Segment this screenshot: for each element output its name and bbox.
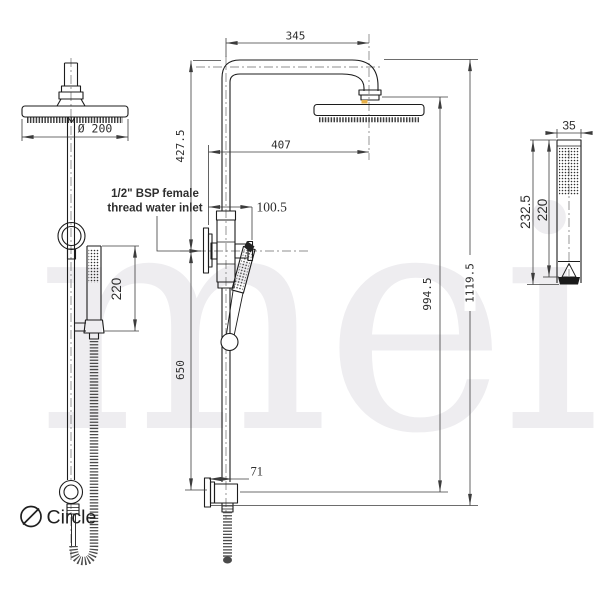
arm-inner: [230, 74, 364, 91]
technical-drawing-page: meir: [0, 0, 600, 600]
dim-100-text: 100.5: [257, 200, 288, 215]
dim-220l-text: 220: [109, 278, 124, 301]
hose-tip: [223, 557, 232, 564]
circle-style-symbol: [21, 507, 41, 527]
bottom-hose-nut-ribs: [222, 506, 233, 509]
inlet-note-line2: thread water inlet: [107, 203, 202, 215]
diameter-symbol-slash: [23, 509, 39, 525]
dim-35-text: 35: [562, 119, 576, 133]
dim-71-text: 71: [251, 465, 264, 479]
circle-style-label: Circle: [47, 507, 97, 529]
shower-system-drawing: meir: [0, 0, 600, 600]
dim-200-text: Ø 200: [78, 122, 113, 136]
dim-650-text: 650: [174, 360, 187, 380]
inlet-note-line1: 1/2" BSP female: [111, 188, 199, 200]
handpiece-spray-dots-front: [89, 249, 100, 283]
nozzle-tip: [558, 277, 580, 285]
lower-bracket-circle-outer: [60, 481, 83, 504]
dim-994-text: 994.5: [421, 277, 434, 310]
bottom-hose-nut: [222, 503, 233, 512]
slider-ball: [221, 334, 238, 351]
dim-407-text: 407: [271, 139, 291, 152]
dim-345-text: 345: [286, 30, 306, 43]
head-nut-lower: [361, 95, 379, 100]
accent-mark: [362, 100, 368, 104]
handpiece-spray-dots: [559, 148, 579, 195]
overhead-shower-front: [22, 106, 128, 117]
dim-1119-text: 1119.5: [464, 263, 477, 303]
dim-2325-text: 232.5: [518, 195, 533, 229]
dim-427-text: 427.5: [174, 129, 187, 162]
dim-220r-text: 220: [535, 199, 550, 222]
